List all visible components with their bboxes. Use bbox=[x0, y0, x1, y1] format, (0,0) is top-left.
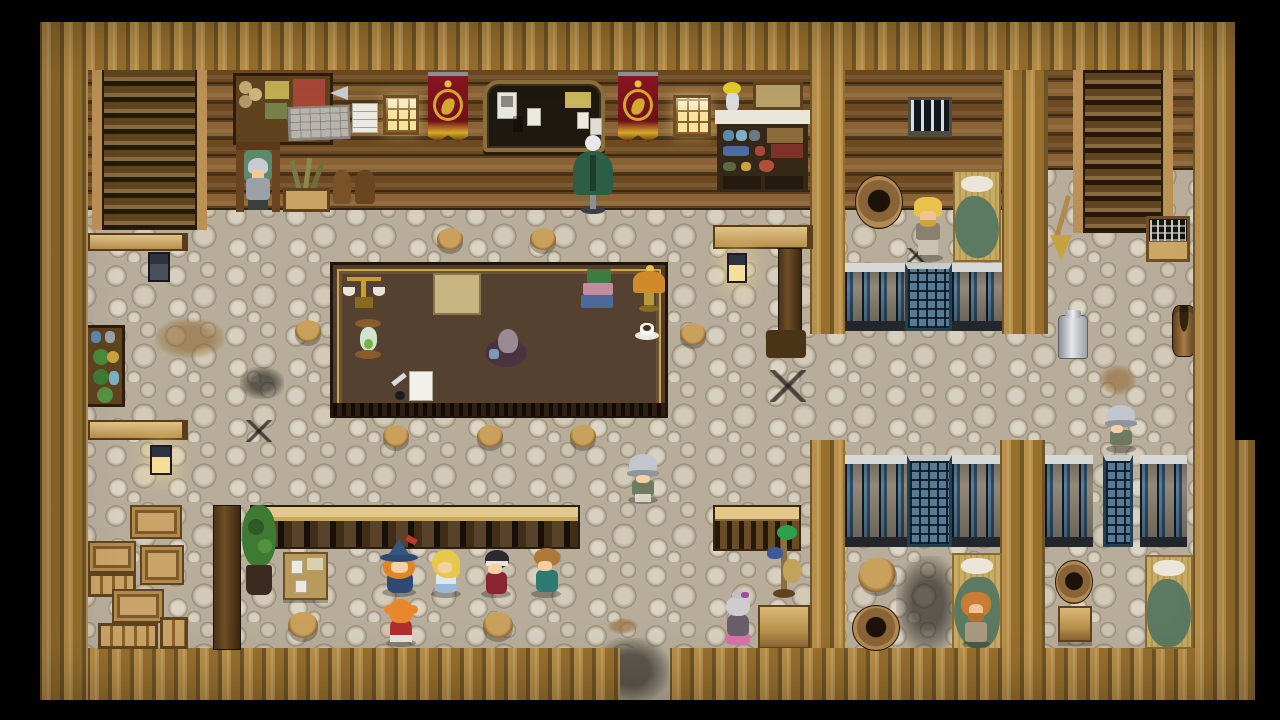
hourglass-bottom bbox=[355, 350, 381, 359]
board-note-3 bbox=[590, 118, 602, 135]
book-blue bbox=[581, 295, 613, 308]
jar-row-blue bbox=[723, 146, 749, 156]
blanket-green bbox=[1147, 579, 1191, 647]
blanket-green bbox=[955, 196, 999, 258]
doorway-beam-right bbox=[713, 225, 813, 249]
dress-gray bbox=[727, 614, 749, 636]
small-cup-blue bbox=[489, 349, 499, 359]
scuff-cross-left bbox=[243, 420, 275, 442]
face bbox=[438, 562, 452, 573]
pinned-note-1 bbox=[291, 560, 303, 574]
wall-map-gray[interactable] bbox=[287, 105, 350, 141]
bar-pillar bbox=[213, 505, 241, 650]
mannequin-head bbox=[585, 135, 601, 151]
hat-blue bbox=[767, 547, 783, 559]
small-notice-board[interactable] bbox=[283, 552, 328, 600]
wall-lamp-lit-right bbox=[727, 253, 747, 283]
knight-on-chair[interactable] bbox=[236, 142, 280, 218]
boots-pair-1 bbox=[333, 170, 351, 204]
grated-crate bbox=[1146, 216, 1190, 262]
jail-bars-mid-2 bbox=[952, 263, 1002, 331]
npc-prisoner-ginger[interactable] bbox=[958, 590, 994, 648]
jail-bars-mid-1 bbox=[845, 263, 905, 331]
scroll-roll-3 bbox=[249, 88, 262, 101]
wanted-portrait bbox=[501, 96, 513, 107]
knight-legs bbox=[248, 200, 268, 210]
melon-2 bbox=[93, 369, 109, 385]
banner-lion-glyph bbox=[440, 97, 455, 116]
npc-red-coat-man[interactable] bbox=[478, 550, 514, 598]
stool-table-left[interactable] bbox=[295, 320, 321, 342]
wall-note[interactable] bbox=[352, 103, 378, 133]
book-pink bbox=[583, 283, 613, 295]
cell-window-barred bbox=[908, 97, 952, 137]
stool-bar-1[interactable] bbox=[288, 612, 318, 638]
beard bbox=[968, 613, 984, 622]
board-note-2 bbox=[577, 112, 589, 129]
kitchen-counter bbox=[715, 82, 810, 195]
potted-plant bbox=[238, 505, 280, 597]
planter-box bbox=[283, 188, 330, 212]
banner-lion-glyph bbox=[630, 97, 645, 116]
scales-cup-left bbox=[343, 287, 355, 296]
npc-teal-coat-man[interactable] bbox=[527, 548, 565, 598]
boots-pair-2 bbox=[355, 170, 375, 204]
bowl-olive bbox=[723, 162, 736, 171]
scales-base bbox=[355, 297, 373, 308]
lamp-shade bbox=[633, 271, 665, 293]
pillow bbox=[961, 558, 993, 574]
wall-bottom-right bbox=[670, 648, 1195, 700]
jar-blue-1 bbox=[723, 130, 734, 141]
jail-bars-bot-2 bbox=[952, 455, 1000, 547]
chair-post-right bbox=[272, 142, 280, 212]
spear-tip bbox=[330, 85, 348, 101]
body-ragged bbox=[965, 622, 987, 642]
pinned-note-2 bbox=[307, 558, 323, 570]
jail-gate-bot-1[interactable] bbox=[907, 455, 952, 547]
hat-green bbox=[777, 525, 797, 540]
npc-prisoner-blonde[interactable] bbox=[908, 195, 948, 263]
wall-lamp-lit-left bbox=[150, 445, 172, 475]
divider-hall-jail-lower bbox=[810, 440, 845, 652]
crate-yellow bbox=[265, 81, 289, 99]
branch-1 bbox=[289, 160, 301, 190]
crate-low-1 bbox=[112, 589, 164, 623]
counter-top bbox=[715, 110, 810, 124]
council-table[interactable] bbox=[330, 262, 668, 418]
jail-bars-bot-4 bbox=[1140, 455, 1187, 547]
npc-witch-mage[interactable] bbox=[378, 543, 420, 597]
jail-bars-bot-3 bbox=[1045, 455, 1093, 547]
cell-bedroll-top bbox=[953, 170, 1001, 262]
stool-table-bottom-1[interactable] bbox=[383, 425, 409, 447]
milk-can bbox=[1058, 315, 1088, 359]
stool-bar-2[interactable] bbox=[483, 612, 513, 638]
chair-post-left bbox=[236, 142, 244, 212]
dark-smudge-left bbox=[240, 367, 284, 399]
lamp-foot bbox=[639, 305, 659, 312]
bottle-aqua bbox=[109, 371, 119, 385]
foliage-light bbox=[258, 539, 272, 553]
knight-face bbox=[252, 170, 264, 178]
face bbox=[538, 561, 552, 571]
scales-beam bbox=[347, 277, 381, 281]
cloak-mannequin[interactable] bbox=[573, 135, 613, 215]
letterbox-step-right bbox=[1235, 22, 1255, 440]
hair-bun-left bbox=[384, 605, 393, 614]
face bbox=[636, 475, 650, 483]
wall-left-band bbox=[40, 22, 88, 700]
beard bbox=[920, 220, 936, 227]
board-note-1 bbox=[527, 108, 541, 126]
left-beam-lower bbox=[88, 420, 188, 440]
face bbox=[391, 561, 408, 573]
satchel bbox=[783, 559, 801, 583]
coat-rack bbox=[765, 525, 803, 599]
coat-teal bbox=[536, 570, 558, 592]
scroll-pile bbox=[753, 82, 803, 110]
dirt-patch-left bbox=[155, 318, 225, 358]
npc-girl-red-dress[interactable] bbox=[383, 597, 419, 647]
npc-old-lady[interactable] bbox=[720, 592, 756, 646]
letter-paper bbox=[409, 371, 433, 401]
board-notice-yellow bbox=[565, 92, 591, 108]
writing-desk[interactable] bbox=[758, 605, 810, 649]
cloak-trim bbox=[590, 155, 596, 191]
stool-table-bottom-3[interactable] bbox=[570, 425, 596, 447]
window-lit-1 bbox=[383, 95, 419, 135]
legs bbox=[635, 494, 651, 502]
wine-jug bbox=[498, 329, 518, 353]
soot-stain-cell-a bbox=[896, 556, 960, 652]
npc-guard-center[interactable] bbox=[625, 452, 661, 504]
branch-planter bbox=[283, 160, 330, 212]
crate-mid-1 bbox=[88, 541, 136, 573]
pot-gold bbox=[741, 162, 751, 171]
stool-table-top-1[interactable] bbox=[437, 228, 463, 250]
bow-purple bbox=[741, 592, 749, 598]
left-beam-upper bbox=[88, 233, 188, 251]
pillow bbox=[1153, 560, 1185, 576]
hair-bun-right bbox=[409, 605, 418, 614]
cell-bucket-2 bbox=[852, 605, 900, 651]
bottle-blue bbox=[91, 331, 101, 343]
stool-table-top-2[interactable] bbox=[530, 228, 556, 250]
hourglass-sand bbox=[364, 339, 373, 349]
produce-stand[interactable] bbox=[85, 325, 125, 407]
stairs-up-right[interactable] bbox=[1073, 68, 1173, 233]
barrel-open-cell bbox=[1055, 560, 1093, 604]
face bbox=[1111, 425, 1123, 433]
crate-mid-2 bbox=[140, 545, 184, 585]
lamp-stem bbox=[644, 293, 654, 305]
drawer-red bbox=[771, 144, 803, 158]
stool-table-bottom-2[interactable] bbox=[477, 425, 503, 447]
jail-bars-bot-1 bbox=[845, 455, 907, 547]
stool-broken bbox=[853, 552, 902, 599]
cell-table-small bbox=[1058, 606, 1092, 642]
crate-front-3 bbox=[160, 617, 188, 649]
plant-pot bbox=[246, 565, 272, 595]
box-green bbox=[265, 103, 287, 119]
pinned-note-3 bbox=[295, 580, 307, 593]
wall-lamp-unlit bbox=[148, 252, 170, 282]
drawer-tan bbox=[767, 128, 803, 143]
banner-crest-1 bbox=[428, 72, 468, 142]
drawer-dark-1 bbox=[723, 176, 761, 189]
broom-head bbox=[1050, 235, 1072, 261]
board-shadow-item bbox=[513, 116, 523, 132]
cell-bedroll-b bbox=[1145, 555, 1193, 649]
dirt-patch-exit bbox=[608, 618, 638, 634]
knight-armor bbox=[246, 178, 270, 200]
foliage-dark bbox=[248, 519, 264, 535]
pillar-base bbox=[766, 330, 806, 358]
dress-trim bbox=[390, 635, 412, 642]
scuff-cross-right bbox=[770, 370, 806, 402]
stool-table-right[interactable] bbox=[680, 323, 706, 345]
coffee-surface bbox=[643, 325, 651, 331]
crate-stack bbox=[88, 505, 188, 650]
jail-gate-bot-2[interactable] bbox=[1103, 455, 1133, 547]
shadow bbox=[1106, 445, 1136, 453]
chair-top bbox=[236, 142, 280, 150]
pillow bbox=[961, 176, 993, 192]
drawer-dark-2 bbox=[765, 176, 803, 189]
jail-gate-mid[interactable] bbox=[905, 263, 952, 331]
bottle-gray bbox=[105, 331, 115, 343]
crate-front-2 bbox=[98, 623, 158, 649]
ink-pot bbox=[395, 391, 405, 400]
rack-base bbox=[773, 589, 795, 598]
hair-gray bbox=[726, 596, 750, 616]
npc-blonde-girl[interactable] bbox=[428, 550, 464, 598]
crate-top-1 bbox=[130, 505, 182, 539]
table-map bbox=[433, 273, 481, 315]
dirt-patch-corridor bbox=[1100, 365, 1136, 395]
banner-crest-2 bbox=[618, 72, 658, 142]
cell-bucket-tilted bbox=[855, 175, 903, 229]
wall-bottom-left bbox=[88, 648, 620, 700]
divider-cells-bottom bbox=[1000, 440, 1045, 652]
game-stage[interactable] bbox=[40, 22, 1255, 700]
face bbox=[488, 564, 502, 574]
shadow bbox=[913, 254, 943, 262]
jar-gray bbox=[749, 130, 760, 141]
skirt-blue bbox=[435, 584, 457, 593]
npc-guard-right[interactable] bbox=[1103, 403, 1139, 453]
window-lit-2 bbox=[673, 95, 711, 137]
branch-3 bbox=[310, 162, 324, 190]
wall-top-band bbox=[40, 22, 1255, 70]
produce-basket bbox=[107, 351, 119, 363]
jar-blue-2 bbox=[736, 130, 747, 141]
foliage bbox=[242, 505, 276, 567]
stairs-up-left[interactable] bbox=[92, 68, 207, 230]
scales-cup-right bbox=[373, 287, 385, 296]
melon-3 bbox=[97, 387, 113, 403]
sack-red bbox=[759, 160, 774, 172]
broom-stick bbox=[1054, 195, 1071, 239]
broom-leaning bbox=[1048, 195, 1074, 261]
drawers-red bbox=[293, 79, 325, 107]
pot-red-1 bbox=[755, 146, 765, 156]
book-green bbox=[587, 269, 611, 283]
coat-red bbox=[486, 572, 507, 594]
quill-feather bbox=[391, 373, 407, 387]
